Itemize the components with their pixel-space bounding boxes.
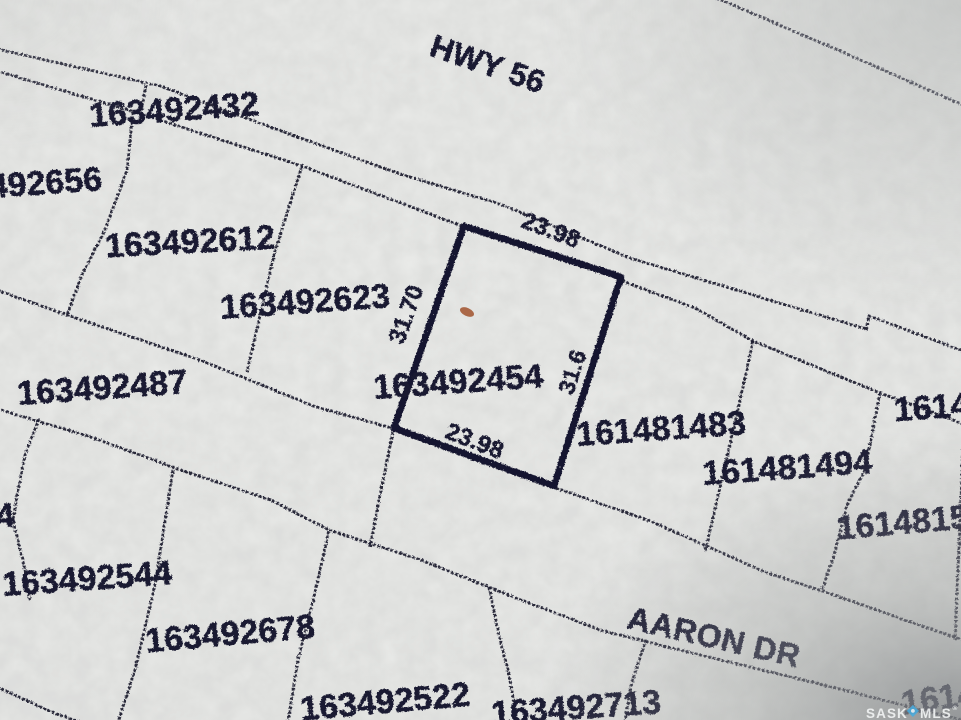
svg-text:SASK: SASK: [866, 706, 908, 720]
svg-text:MLS: MLS: [920, 706, 952, 720]
svg-text:®: ®: [953, 704, 958, 712]
